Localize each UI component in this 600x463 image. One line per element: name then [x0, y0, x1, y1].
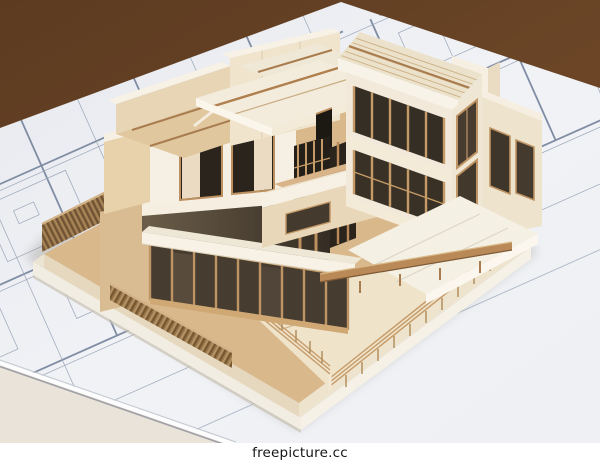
scene-svg: [0, 0, 600, 463]
photo-canvas: freepicture.cc: [0, 0, 600, 463]
watermark-text: freepicture.cc: [252, 445, 348, 461]
watermark-bar: freepicture.cc: [0, 443, 600, 463]
